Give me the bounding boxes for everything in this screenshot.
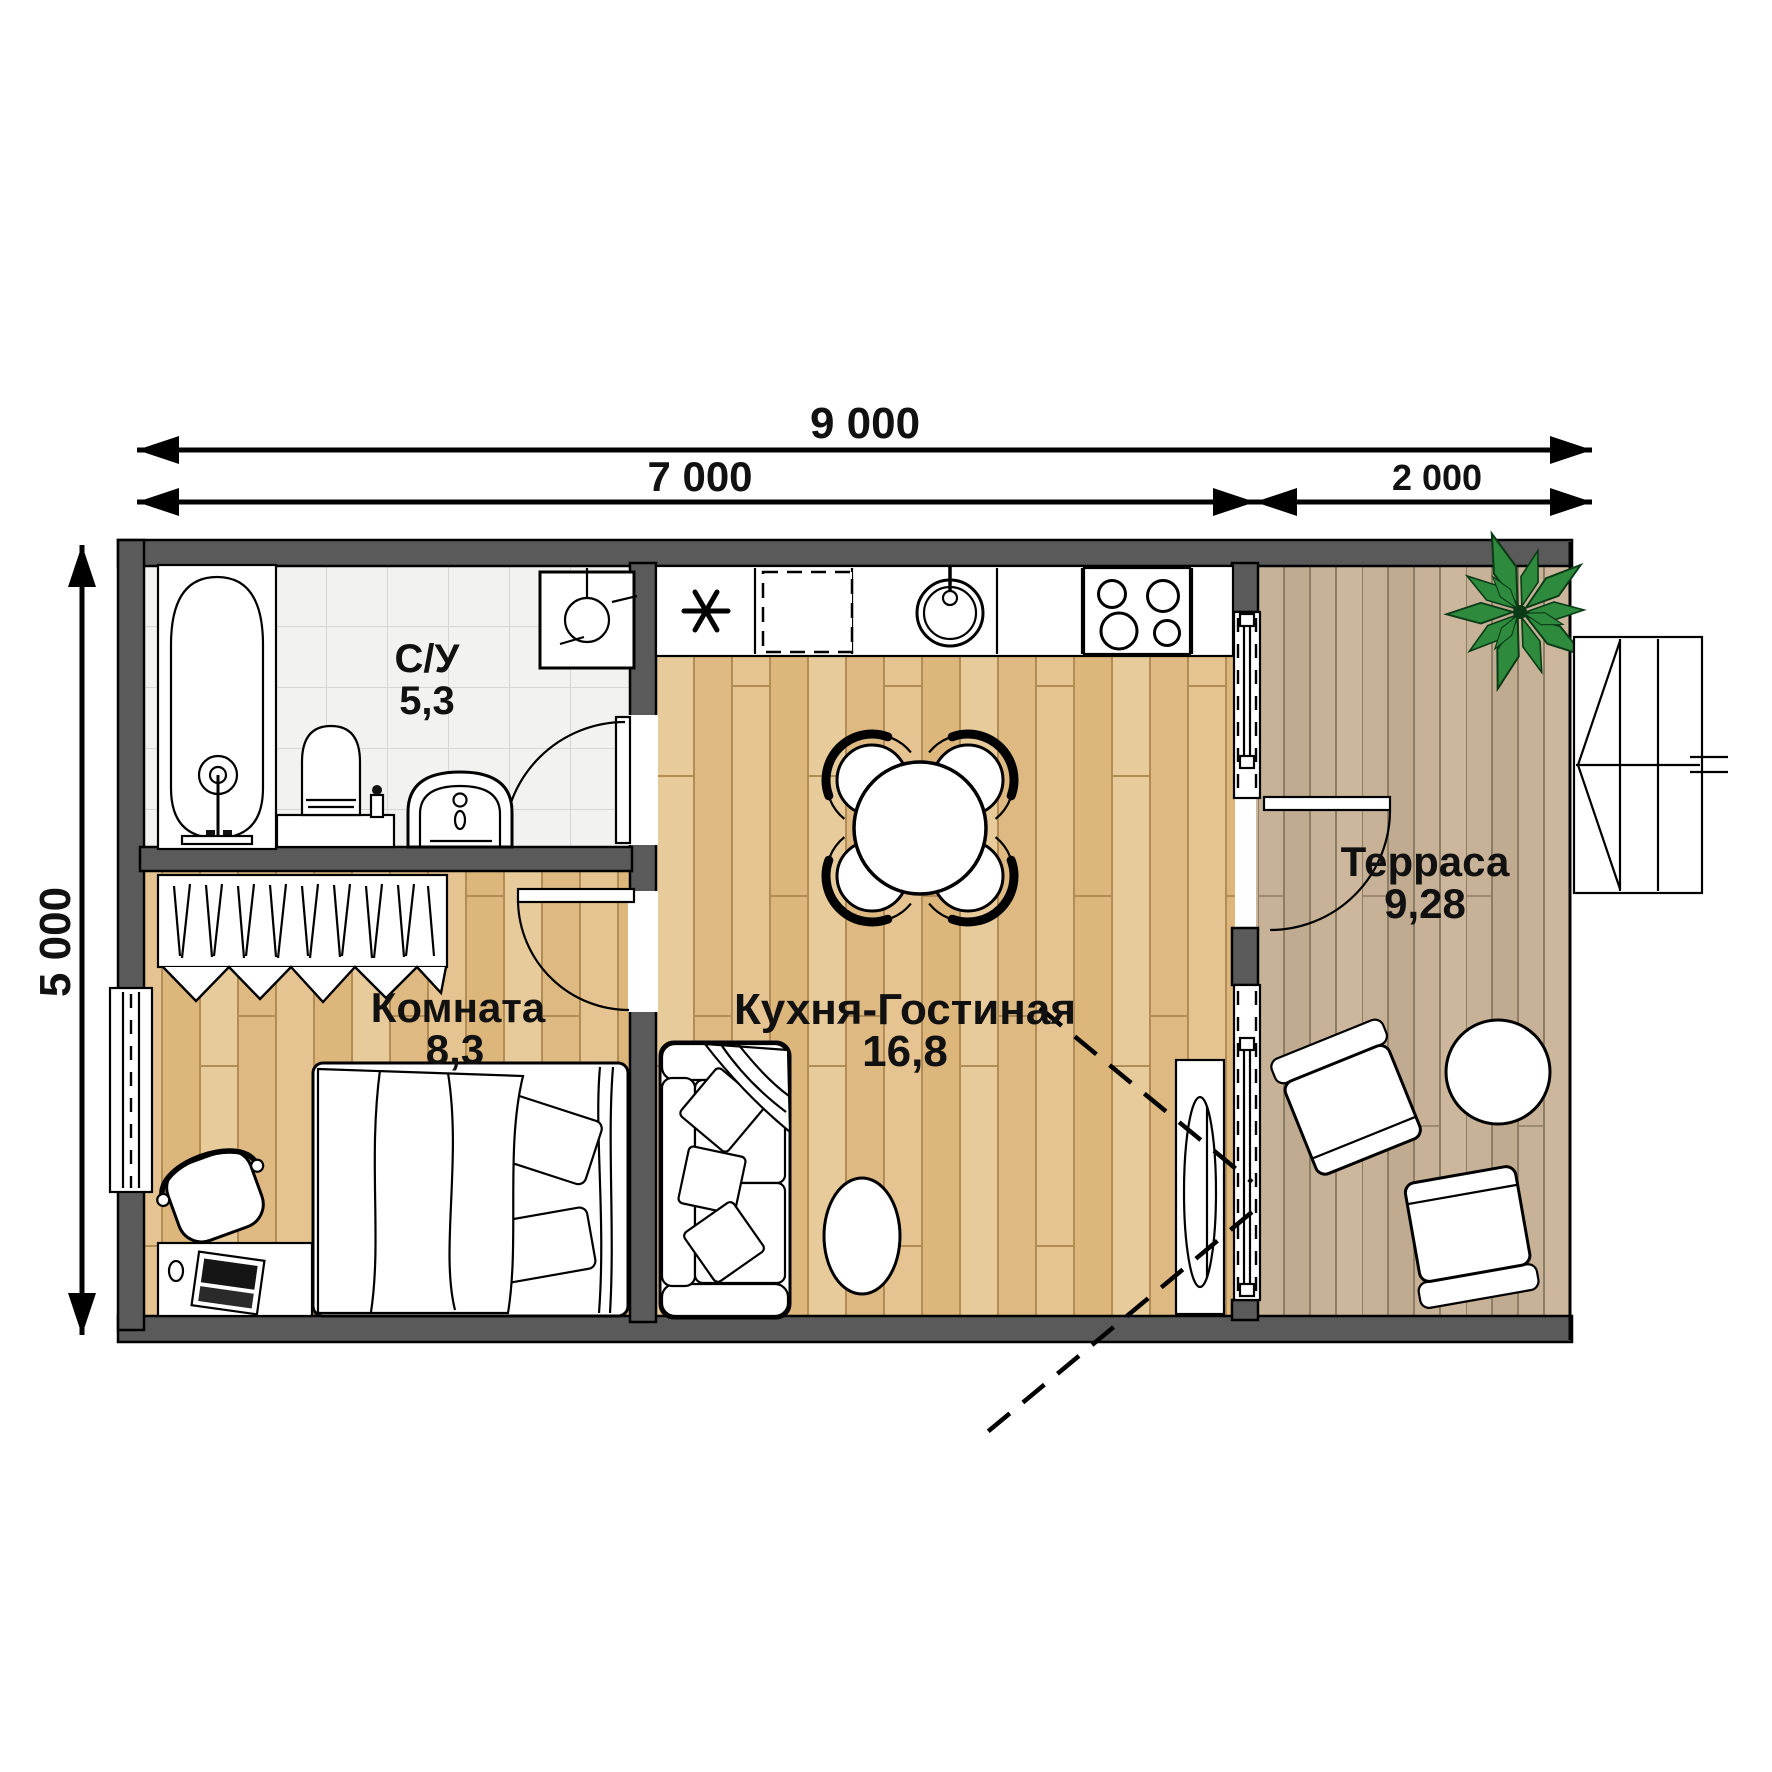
arrow-down-icon bbox=[68, 1293, 96, 1335]
wall-bathroom-bedroom bbox=[140, 847, 632, 871]
arrow-left-icon bbox=[137, 488, 179, 516]
dimension-terrace-width: 2 000 bbox=[1255, 457, 1592, 516]
dimension-total-width-label: 9 000 bbox=[810, 399, 920, 448]
wall-top bbox=[118, 540, 1572, 566]
bedroom-window bbox=[110, 988, 152, 1192]
blanket bbox=[318, 1069, 523, 1313]
terrace-label: Терраса bbox=[1341, 838, 1510, 885]
wall-divider-lower bbox=[630, 1010, 656, 1322]
glass-wall-stub-bottom bbox=[1232, 1300, 1258, 1320]
tv-console bbox=[1176, 1060, 1224, 1314]
desk bbox=[158, 1243, 312, 1316]
hygiene-sprayer bbox=[371, 795, 383, 817]
wall-left-upper bbox=[118, 540, 144, 990]
bathroom-area: 5,3 bbox=[399, 679, 455, 723]
mouse bbox=[169, 1261, 183, 1281]
dimension-depth-label: 5 000 bbox=[31, 887, 80, 997]
bedroom-area: 8,3 bbox=[426, 1026, 484, 1073]
washing-machine bbox=[540, 568, 637, 668]
wall-bottom bbox=[118, 1316, 1572, 1342]
bathtub bbox=[158, 565, 276, 849]
arrow-up-icon bbox=[68, 545, 96, 587]
arrow-right-icon bbox=[1550, 488, 1592, 516]
dimension-depth: 5 000 bbox=[31, 545, 96, 1335]
terrace-table bbox=[1446, 1020, 1550, 1124]
dishwasher bbox=[763, 572, 852, 652]
door-leaf bbox=[616, 717, 630, 843]
arrow-left-icon bbox=[1255, 488, 1297, 516]
kitchen-living-area: 16,8 bbox=[862, 1027, 948, 1076]
dimension-total-width: 9 000 bbox=[137, 399, 1592, 464]
sofa bbox=[660, 1042, 790, 1318]
dimension-terrace-width-label: 2 000 bbox=[1392, 457, 1482, 498]
glass-wall-stub-top bbox=[1232, 563, 1258, 612]
tv bbox=[1184, 1097, 1216, 1287]
door-leaf bbox=[518, 889, 634, 902]
dining-table bbox=[854, 762, 986, 894]
terrace-area: 9,28 bbox=[1384, 880, 1466, 927]
bathroom-sink bbox=[408, 772, 512, 847]
door-leaf bbox=[1264, 797, 1390, 810]
bathroom-label: С/У bbox=[395, 637, 461, 681]
kitchen-counter bbox=[656, 566, 1233, 656]
pillow bbox=[678, 1146, 747, 1215]
stairs bbox=[1574, 637, 1728, 893]
wall-divider-middle bbox=[630, 843, 656, 893]
bed bbox=[313, 1063, 628, 1316]
arrow-right-icon bbox=[1550, 436, 1592, 464]
dimension-main-width-label: 7 000 bbox=[647, 453, 752, 500]
laptop bbox=[192, 1252, 265, 1315]
terrace-armchair bbox=[1400, 1164, 1540, 1309]
dimension-main-width: 7 000 bbox=[137, 453, 1255, 516]
floor-plan-canvas: 9 000 7 000 2 000 5 000 bbox=[0, 0, 1772, 1772]
pouf bbox=[824, 1178, 900, 1294]
arrow-right-icon bbox=[1213, 488, 1255, 516]
stove bbox=[1084, 568, 1190, 654]
bedroom-label: Комната bbox=[371, 984, 546, 1031]
wall-left-lower bbox=[118, 1190, 144, 1330]
arrow-left-icon bbox=[137, 436, 179, 464]
glass-wall-stub-middle bbox=[1232, 928, 1258, 985]
